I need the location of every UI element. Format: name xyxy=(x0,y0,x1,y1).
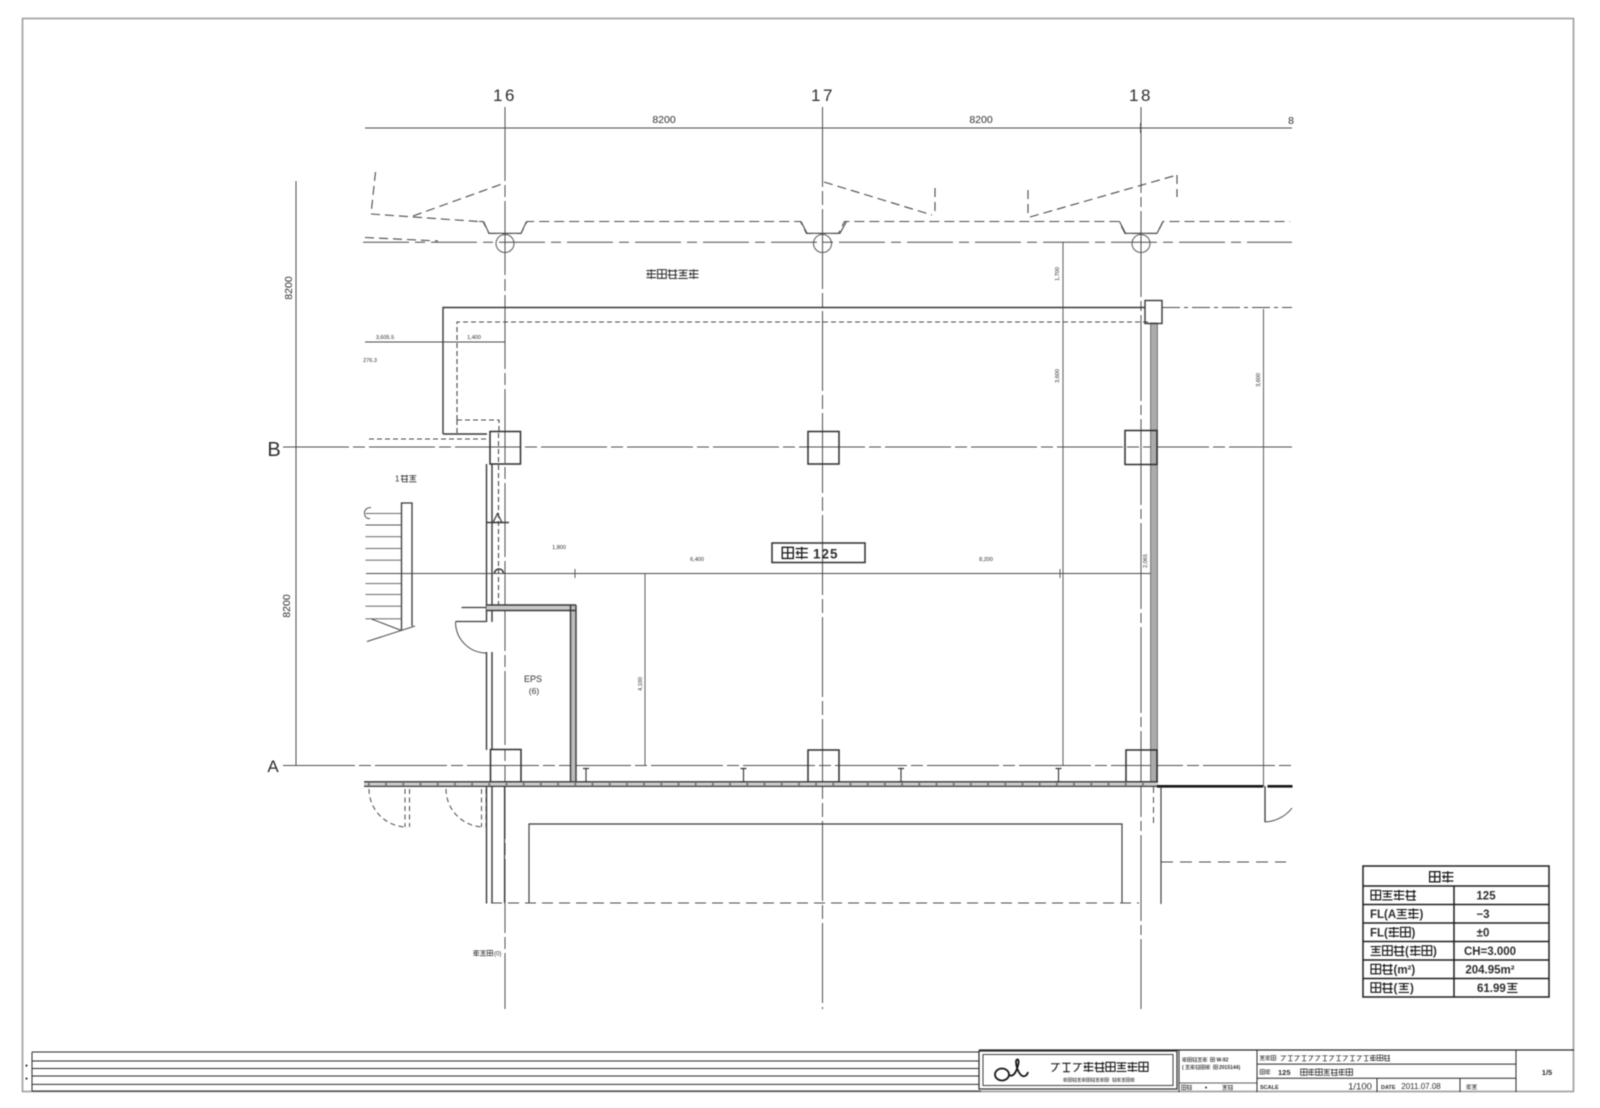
svg-text:): ) xyxy=(1412,928,1416,940)
svg-text:16: 16 xyxy=(493,86,517,105)
svg-text:DATE: DATE xyxy=(1381,1085,1396,1091)
svg-text:): ) xyxy=(1433,946,1437,958)
svg-text:CH=3.000: CH=3.000 xyxy=(1464,946,1516,958)
svg-text:18: 18 xyxy=(1129,86,1153,105)
svg-text:±0: ±0 xyxy=(1477,928,1490,940)
svg-text:61.99: 61.99 xyxy=(1477,983,1506,995)
svg-text:(0): (0) xyxy=(494,952,501,958)
svg-text:●: ● xyxy=(25,1063,28,1069)
svg-text:(m²): (m²) xyxy=(1394,965,1416,977)
svg-text:1/100: 1/100 xyxy=(1348,1082,1372,1093)
svg-text:2015144): 2015144) xyxy=(1219,1065,1240,1071)
svg-text:): ) xyxy=(1420,909,1424,921)
svg-text:4,100: 4,100 xyxy=(638,677,644,691)
svg-text:3,605.5: 3,605.5 xyxy=(376,335,394,341)
svg-text:1,800: 1,800 xyxy=(552,545,566,551)
svg-text:204.95m²: 204.95m² xyxy=(1465,965,1514,977)
svg-text:EPS: EPS xyxy=(524,674,542,684)
svg-text:(: ( xyxy=(1405,946,1409,958)
svg-text:(: ( xyxy=(1394,983,1398,995)
svg-text:8,200: 8,200 xyxy=(979,557,993,563)
svg-text:3,600: 3,600 xyxy=(1256,373,1262,387)
svg-text:●: ● xyxy=(25,1076,28,1082)
svg-text:FL(: FL( xyxy=(1370,928,1388,940)
svg-text:B: B xyxy=(267,439,280,461)
svg-text:2011.07.08: 2011.07.08 xyxy=(1401,1082,1441,1091)
svg-text:125: 125 xyxy=(1278,1068,1291,1077)
svg-text:2,065: 2,065 xyxy=(1143,554,1149,568)
svg-text:1,400: 1,400 xyxy=(467,335,481,341)
svg-text:276.3: 276.3 xyxy=(363,358,377,364)
svg-text:8200: 8200 xyxy=(281,594,293,618)
svg-text:125: 125 xyxy=(813,547,839,562)
svg-text:): ) xyxy=(1410,983,1414,995)
svg-text:−3: −3 xyxy=(1476,909,1489,921)
svg-text:1: 1 xyxy=(395,475,400,484)
svg-text:1/5: 1/5 xyxy=(1542,1068,1552,1077)
svg-text:8200: 8200 xyxy=(969,114,993,126)
svg-text:8: 8 xyxy=(1288,115,1294,127)
svg-text:17: 17 xyxy=(811,86,835,105)
svg-text:6,400: 6,400 xyxy=(690,557,704,563)
svg-text:A: A xyxy=(267,757,279,776)
svg-text:SCALE: SCALE xyxy=(1260,1085,1279,1091)
svg-text:1,700: 1,700 xyxy=(1055,267,1061,281)
svg-text:(6): (6) xyxy=(529,686,540,696)
svg-text:3,600: 3,600 xyxy=(1055,369,1061,383)
svg-text:8200: 8200 xyxy=(652,114,676,126)
svg-text:8200: 8200 xyxy=(283,276,295,300)
svg-text:125: 125 xyxy=(1476,891,1496,903)
svg-text:W-92: W-92 xyxy=(1217,1058,1229,1064)
svg-text:FL(A: FL(A xyxy=(1370,909,1396,921)
